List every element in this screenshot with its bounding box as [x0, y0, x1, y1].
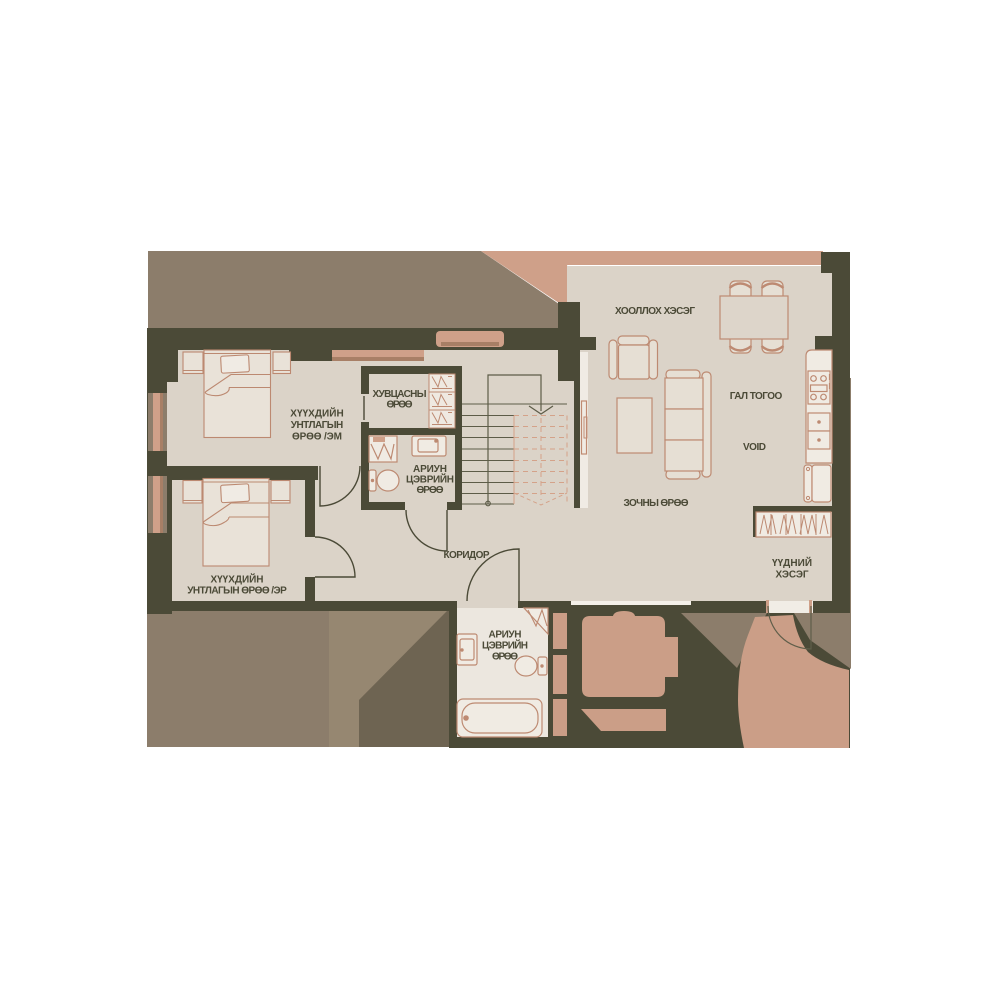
svg-text:ӨРӨӨ /ЭМ: ӨРӨӨ /ЭМ — [292, 432, 342, 443]
svg-text:ӨРӨӨ: ӨРӨӨ — [417, 485, 444, 496]
svg-text:ХУВЦАСНЫ: ХУВЦАСНЫ — [373, 389, 427, 400]
svg-text:ЦЭВРИЙН: ЦЭВРИЙН — [482, 639, 528, 652]
svg-text:АРИУН: АРИУН — [413, 464, 447, 475]
svg-text:ГАЛ ТОГОО: ГАЛ ТОГОО — [730, 391, 783, 402]
svg-text:ӨРӨӨ: ӨРӨӨ — [492, 652, 518, 663]
svg-text:УНТЛАГЫН ӨРӨӨ /ЭР: УНТЛАГЫН ӨРӨӨ /ЭР — [187, 586, 287, 597]
svg-text:ӨРӨӨ: ӨРӨӨ — [387, 400, 413, 411]
svg-text:ХООЛЛОХ ХЭСЭГ: ХООЛЛОХ ХЭСЭГ — [615, 306, 695, 317]
svg-text:ХЭСЭГ: ХЭСЭГ — [776, 570, 809, 581]
svg-text:ЦЭВРИЙН: ЦЭВРИЙН — [406, 473, 454, 486]
svg-text:VOID: VOID — [743, 442, 766, 453]
svg-text:ХҮҮХДИЙН: ХҮҮХДИЙН — [290, 407, 344, 420]
svg-text:ЗОЧНЫ ӨРӨӨ: ЗОЧНЫ ӨРӨӨ — [624, 498, 689, 509]
svg-text:ХҮҮХДИЙН: ХҮҮХДИЙН — [211, 573, 264, 586]
svg-text:АРИУН: АРИУН — [489, 630, 522, 641]
svg-text:КОРИДОР: КОРИДОР — [444, 550, 490, 561]
svg-text:ҮҮДНИЙ: ҮҮДНИЙ — [772, 556, 812, 569]
svg-text:УНТЛАГЫН: УНТЛАГЫН — [291, 420, 344, 431]
